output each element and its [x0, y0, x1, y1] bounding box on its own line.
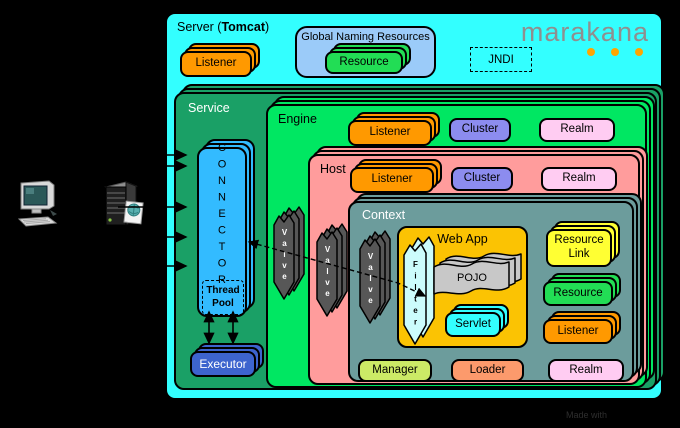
context-resource-chip: Resource	[543, 281, 613, 306]
web-app-box: Web App Filter	[397, 226, 528, 348]
servlet-chip: Servlet	[445, 312, 501, 337]
diagram-canvas: Server (Tomcat) Listener Global Naming R…	[0, 0, 680, 428]
host-cluster-chip: Cluster	[451, 167, 513, 191]
engine-listener-chip: Listener	[348, 120, 432, 146]
host-title: Host	[320, 162, 346, 176]
context-box: Context Valve	[348, 201, 634, 382]
gnr-resource-chip: Resource	[325, 51, 403, 74]
server-title-product: Tomcat	[221, 20, 265, 34]
pojo-label: POJO	[439, 264, 505, 292]
marakana-logo: marakana	[521, 18, 649, 56]
server-box: Server (Tomcat) Listener Global Naming R…	[165, 12, 663, 400]
host-box: Host Listener Cluster Realm	[308, 154, 640, 385]
connector-label-wrap: CONNECTOR	[199, 153, 245, 279]
filter-shape: Filter	[403, 236, 436, 346]
engine-cluster-chip: Cluster	[449, 118, 511, 142]
engine-title: Engine	[278, 112, 317, 126]
logo-dot	[635, 48, 643, 56]
server-title: Server (Tomcat)	[177, 20, 269, 34]
desktop-computer-icon	[16, 180, 62, 230]
server-title-prefix: Server (	[177, 20, 221, 34]
connector-label: CONNECTOR	[216, 142, 228, 291]
server-listener-chip: Listener	[180, 51, 252, 77]
engine-realm-chip: Realm	[539, 118, 615, 142]
connector-box: CONNECTOR Thread Pool	[197, 147, 247, 317]
marakana-logo-text: marakana	[521, 18, 649, 46]
pojo-shape: POJO	[433, 250, 525, 298]
context-valve: Valve	[359, 230, 393, 326]
service-box: Service Engine Listener Cluster Realm	[174, 92, 657, 390]
global-naming-resources-box: Global Naming Resources Resource	[295, 26, 436, 78]
thread-pool-box: Thread Pool	[202, 280, 244, 315]
service-title: Service	[188, 101, 230, 115]
resource-link-chip: Resource Link	[546, 229, 612, 267]
loader-chip: Loader	[451, 359, 524, 382]
host-realm-chip: Realm	[541, 167, 617, 191]
web-server-icon	[98, 180, 146, 230]
context-listener-chip: Listener	[543, 319, 613, 344]
logo-dot	[611, 48, 619, 56]
manager-chip: Manager	[358, 359, 432, 382]
server-title-suffix: )	[265, 20, 269, 34]
global-naming-resources-title: Global Naming Resources	[297, 31, 434, 43]
context-realm-chip: Realm	[548, 359, 624, 382]
context-title: Context	[362, 208, 405, 222]
logo-dot	[587, 48, 595, 56]
marakana-logo-dots	[521, 48, 649, 56]
filter-label: Filter	[411, 260, 420, 329]
host-valve: Valve	[316, 223, 350, 319]
host-valve-label: Valve	[323, 245, 332, 300]
context-valve-label: Valve	[366, 252, 375, 307]
made-with-text: Made with	[566, 410, 607, 420]
executor-chip: Executor	[190, 351, 256, 377]
engine-valve: Valve	[273, 206, 307, 302]
engine-box: Engine Listener Cluster Realm	[266, 104, 647, 388]
engine-valve-label: Valve	[280, 228, 289, 283]
host-listener-chip: Listener	[350, 167, 434, 193]
